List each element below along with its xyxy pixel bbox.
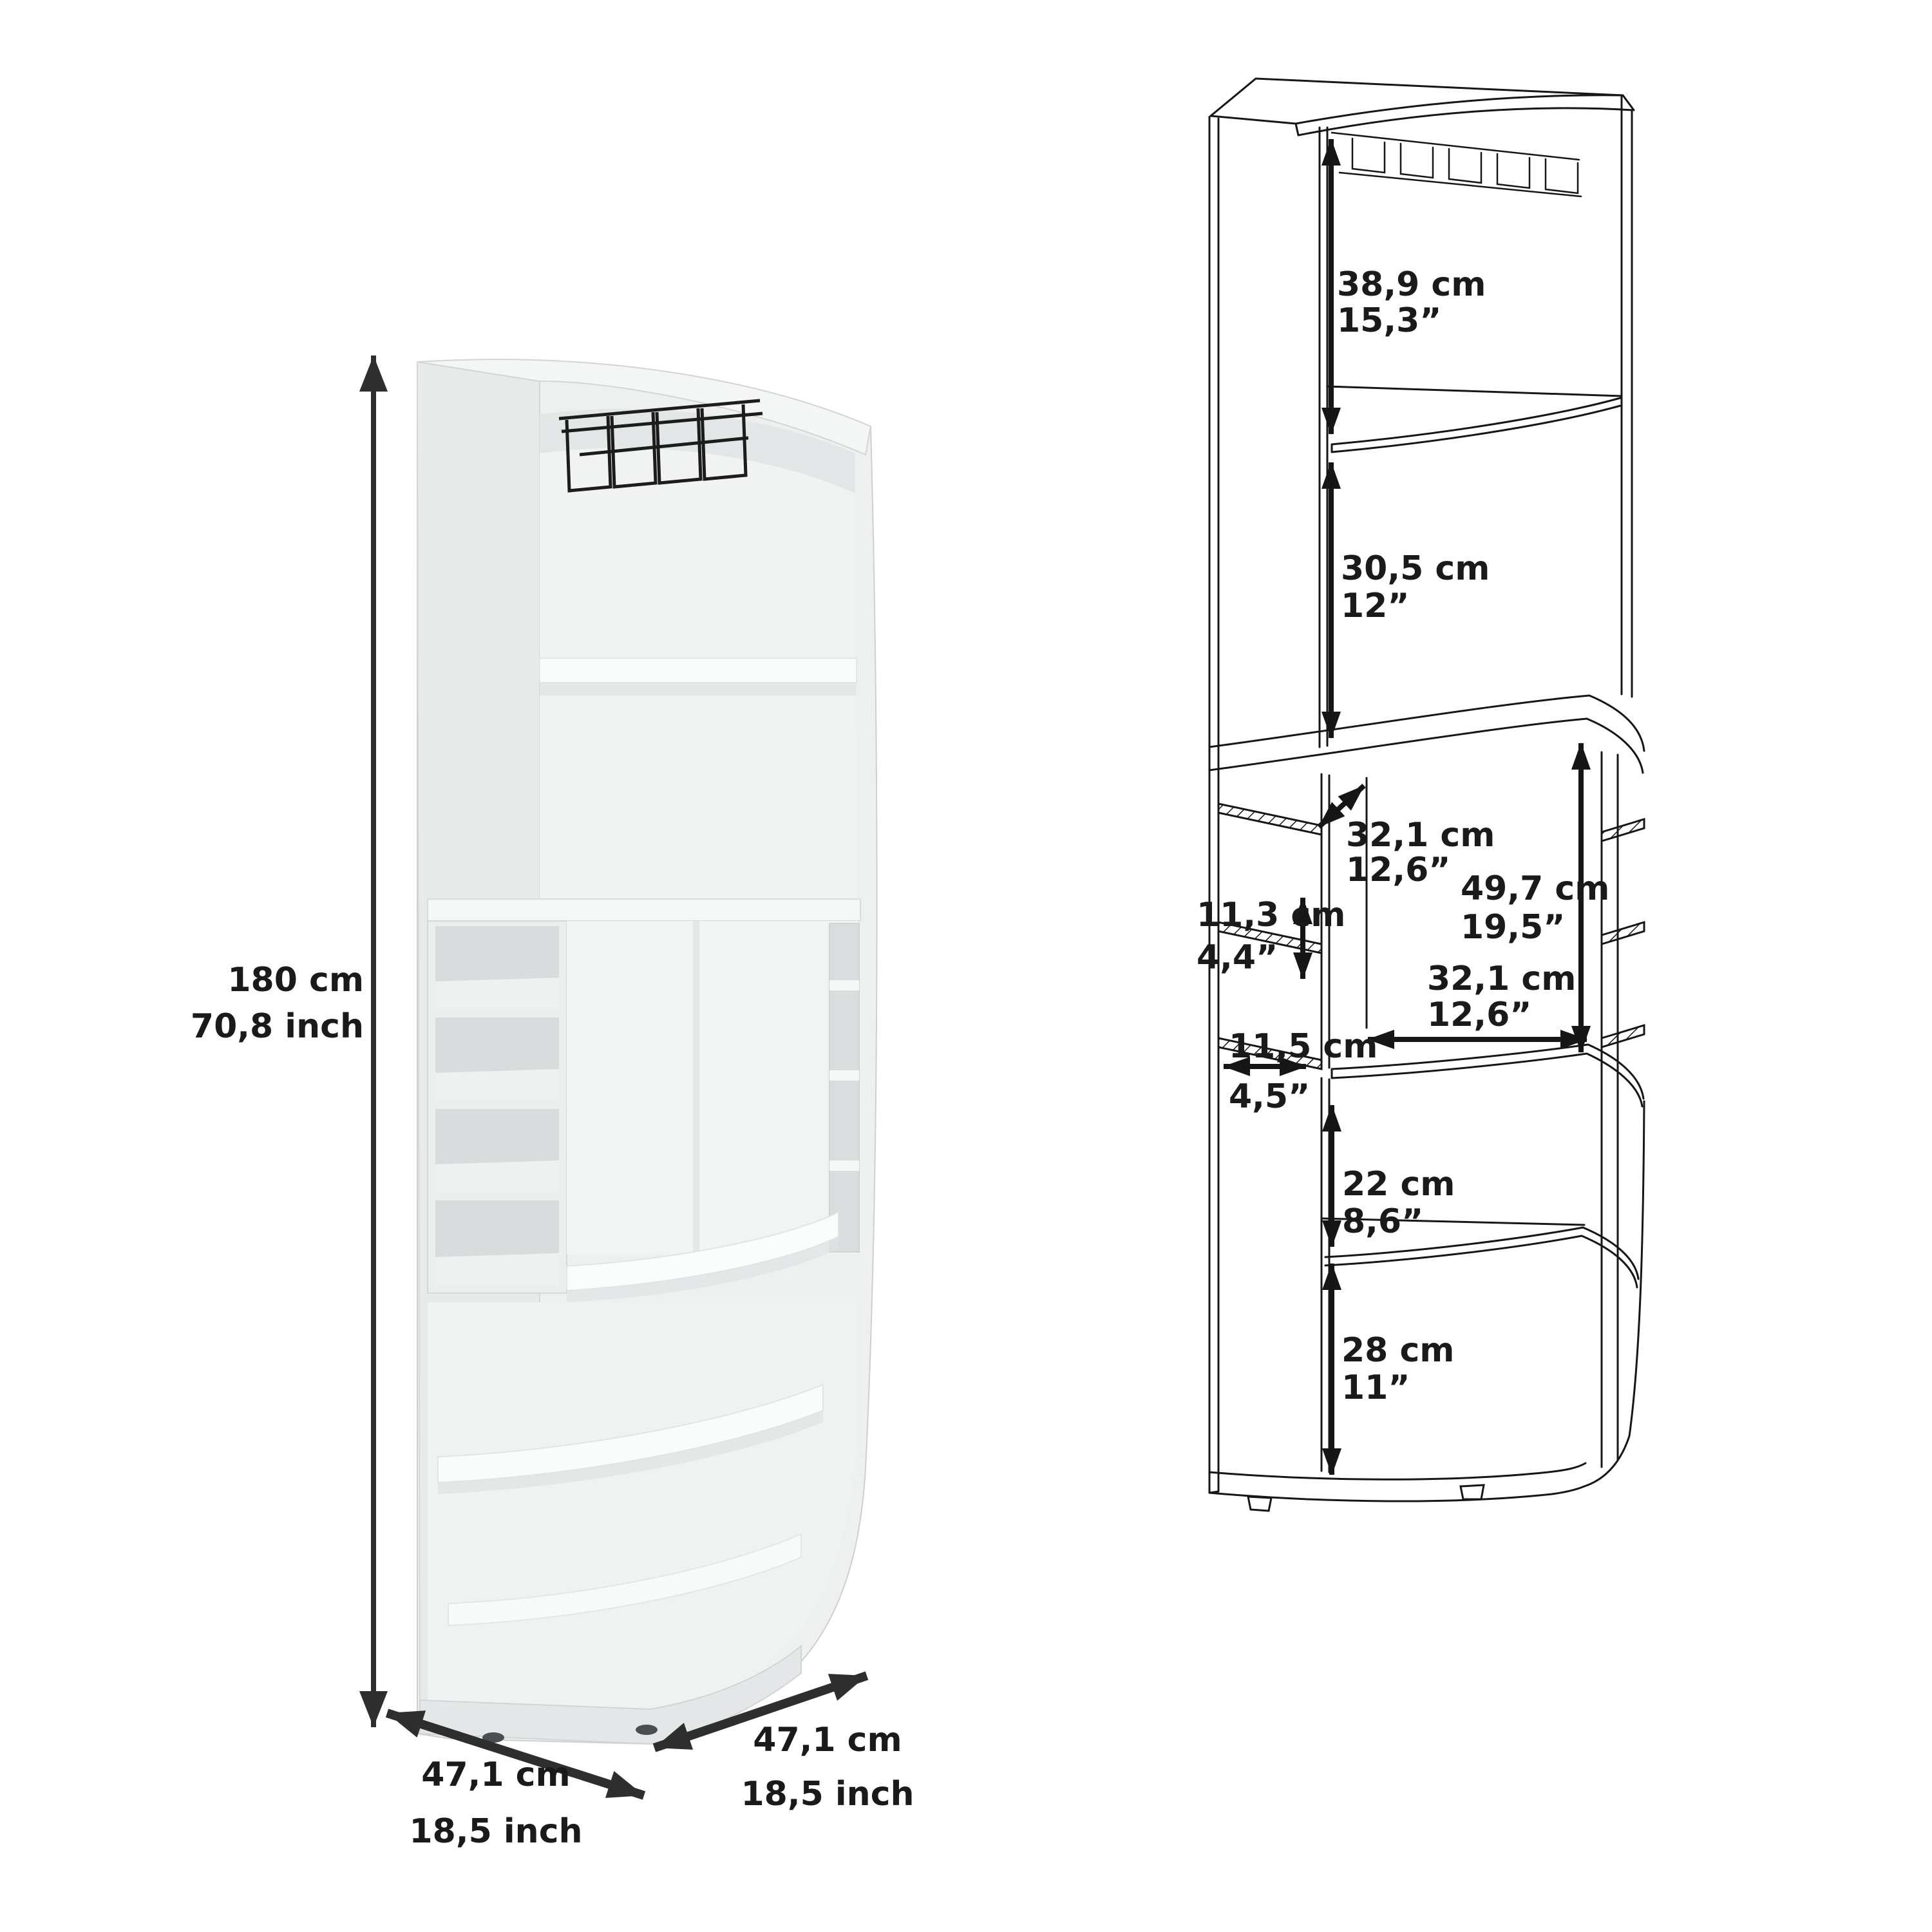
depth-left-dimension-label: 47,1 cm 18,5 inch <box>357 1747 634 1860</box>
height-dimension-label: 180 cm 70,8 inch <box>93 957 364 1050</box>
top-section-inch: 15,3” <box>1337 303 1486 339</box>
cubby-depth-inch: 4,5” <box>1229 1072 1378 1122</box>
cubby-height-cm: 11,3 cm <box>1197 894 1345 936</box>
right-back-edges <box>1622 97 1632 697</box>
upper-cabinet-opening <box>540 409 857 899</box>
bottom-shelf-dimension-label: 28 cm 11” <box>1341 1332 1454 1406</box>
upper-shelf-inch: 12” <box>1341 587 1490 625</box>
depth-left-cm: 47,1 cm <box>357 1747 634 1803</box>
mid-opening-height-dimension-label: 49,7 cm 19,5” <box>1461 869 1609 947</box>
mid-opening-height-inch: 19,5” <box>1461 908 1609 947</box>
top-section-cm: 38,9 cm <box>1337 267 1486 303</box>
base-drawing <box>1209 1463 1586 1501</box>
corner-shading <box>693 921 699 1255</box>
middle-bottom-shelf-drawing <box>1332 1045 1643 1106</box>
cubby-depth-dimension-label: 11,5 cm 4,5” <box>1229 1021 1378 1122</box>
cubby-depth-cm: 11,5 cm <box>1229 1021 1378 1072</box>
cubby-height-inch: 4,4” <box>1197 936 1345 979</box>
side-slot-column <box>829 923 859 1252</box>
lower-shelf-inch: 8,6” <box>1342 1203 1455 1240</box>
lower-shelf-dimension-label: 22 cm 8,6” <box>1342 1166 1455 1240</box>
mid-depth-cm: 32,1 cm <box>1346 818 1495 853</box>
top-panel-thickness <box>1296 108 1633 135</box>
height-cm: 180 cm <box>93 957 364 1003</box>
cubby-height-dimension-label: 11,3 cm 4,4” <box>1197 894 1345 979</box>
slot-column-edges <box>1602 752 1618 1467</box>
height-inch: 70,8 inch <box>93 1003 364 1050</box>
bottom-shelf-inch: 11” <box>1341 1369 1454 1406</box>
mid-opening-width-dimension-label: 32,1 cm 12,6” <box>1427 961 1576 1033</box>
mid-opening-height-cm: 49,7 cm <box>1461 869 1609 908</box>
top-panel-front-curve <box>1296 95 1634 124</box>
middle-open-corner <box>567 921 858 1255</box>
upper-shelf-dimension-label: 30,5 cm 12” <box>1341 550 1490 625</box>
depth-left-inch: 18,5 inch <box>357 1803 634 1860</box>
mid-opening-width-cm: 32,1 cm <box>1427 961 1576 997</box>
cabinet-foot <box>636 1725 658 1735</box>
upper-shelf-cm: 30,5 cm <box>1341 550 1490 587</box>
section-divider <box>428 899 860 921</box>
rendered-cabinet-figure <box>417 359 877 1744</box>
bottom-shelf-cm: 28 cm <box>1341 1332 1454 1369</box>
lower-shelf-cm: 22 cm <box>1342 1166 1455 1203</box>
depth-right-dimension-label: 47,1 cm 18,5 inch <box>692 1713 963 1821</box>
depth-right-cm: 47,1 cm <box>692 1713 963 1767</box>
interior-corner-lower <box>1321 1078 1329 1472</box>
depth-right-inch: 18,5 inch <box>692 1767 963 1821</box>
left-panel-edges <box>1209 117 1218 1493</box>
upper-shelf <box>540 658 857 683</box>
mid-opening-width-inch: 12,6” <box>1427 997 1576 1033</box>
interior-corner-upper <box>1320 128 1327 747</box>
upper-shelf-shadow <box>540 683 857 696</box>
top-section-dimension-label: 38,9 cm 15,3” <box>1337 267 1486 339</box>
outer-right-edge <box>1584 1101 1644 1486</box>
wine-glass-rack-drawing <box>1332 133 1581 196</box>
upper-shelf-drawing <box>1327 386 1622 452</box>
